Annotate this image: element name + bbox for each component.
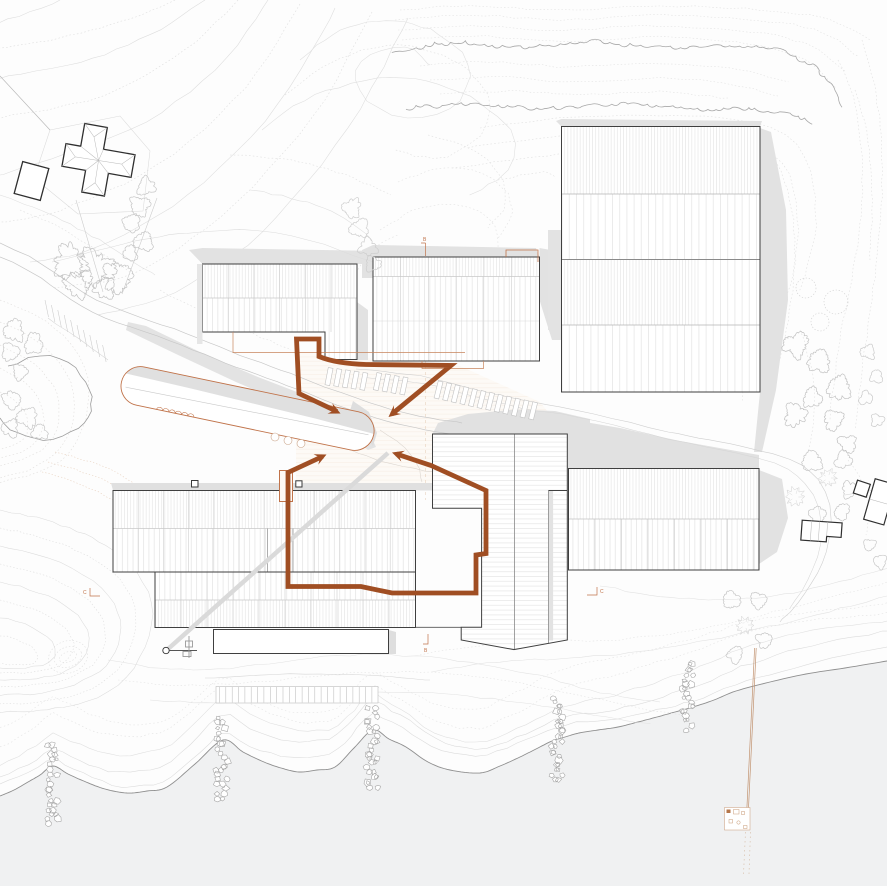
- svg-text:C: C: [83, 590, 87, 596]
- svg-text:C: C: [600, 589, 604, 595]
